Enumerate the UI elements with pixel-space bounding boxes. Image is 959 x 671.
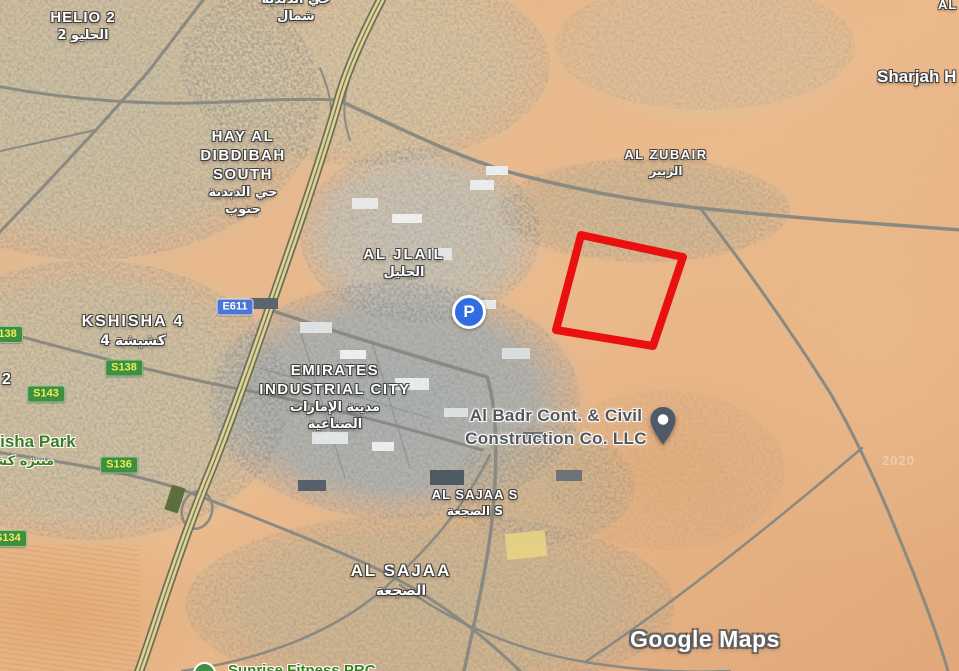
locality-label-kshisha-4: KSHISHA 4 كشيشة 4 (82, 312, 185, 351)
parking-poi-icon[interactable]: P (452, 295, 486, 329)
road-badge-s134-partial: S134 (0, 530, 27, 547)
locality-label-sharjah-partial: Sharjah H (877, 66, 956, 88)
locality-label-al-sajaa-s: AL SAJAA S الصجعة S (432, 486, 519, 519)
road-badge-e611: E611 (216, 299, 253, 316)
locality-label-hay-al-dibdibah-south: HAY AL DIBDIBAH SOUTH حي الدبدبة جنوب (200, 127, 285, 218)
locality-label-al-zubair: AL ZUBAIR الزبير (624, 146, 707, 179)
locality-label-al-partial: AL (938, 0, 957, 13)
poi-label-bottom-partial[interactable]: Sunrise Fitness PRC (228, 662, 376, 671)
locality-label-al-sajaa: AL SAJAA الصجعة (351, 560, 452, 601)
locality-label-helio-2: HELIO 2 الحليو 2 (50, 8, 115, 44)
locality-label-emirates-industrial-city: EMIRATES INDUSTRIAL CITY مدينة الإمارات … (259, 361, 410, 433)
map-pin-icon[interactable] (649, 406, 677, 451)
google-maps-watermark: Google Maps (630, 626, 780, 653)
locality-label-al-jlail: AL JLAIL الجليل (363, 245, 445, 281)
road-badge-s138-partial: S138 (0, 326, 23, 343)
road-badge-s143: S143 (27, 386, 65, 403)
poi-label-al-badr[interactable]: Al Badr Cont. & Civil Construction Co. L… (465, 404, 647, 450)
poi-label-kshisha-park[interactable]: Kshisha Park منتزه كشيشة (0, 431, 76, 470)
road-badge-s138: S138 (105, 360, 143, 377)
locality-label-kshisha-2-partial: 2 (2, 370, 11, 390)
locality-label-hay-al-dibdibah-north: حي الدبدبة شمال (261, 0, 330, 25)
road-badge-s136: S136 (100, 457, 138, 474)
imagery-year-watermark: 2020 (882, 453, 915, 468)
satellite-map[interactable]: حي الدبدبة شمال HELIO 2 الحليو 2 HAY AL … (0, 0, 959, 671)
